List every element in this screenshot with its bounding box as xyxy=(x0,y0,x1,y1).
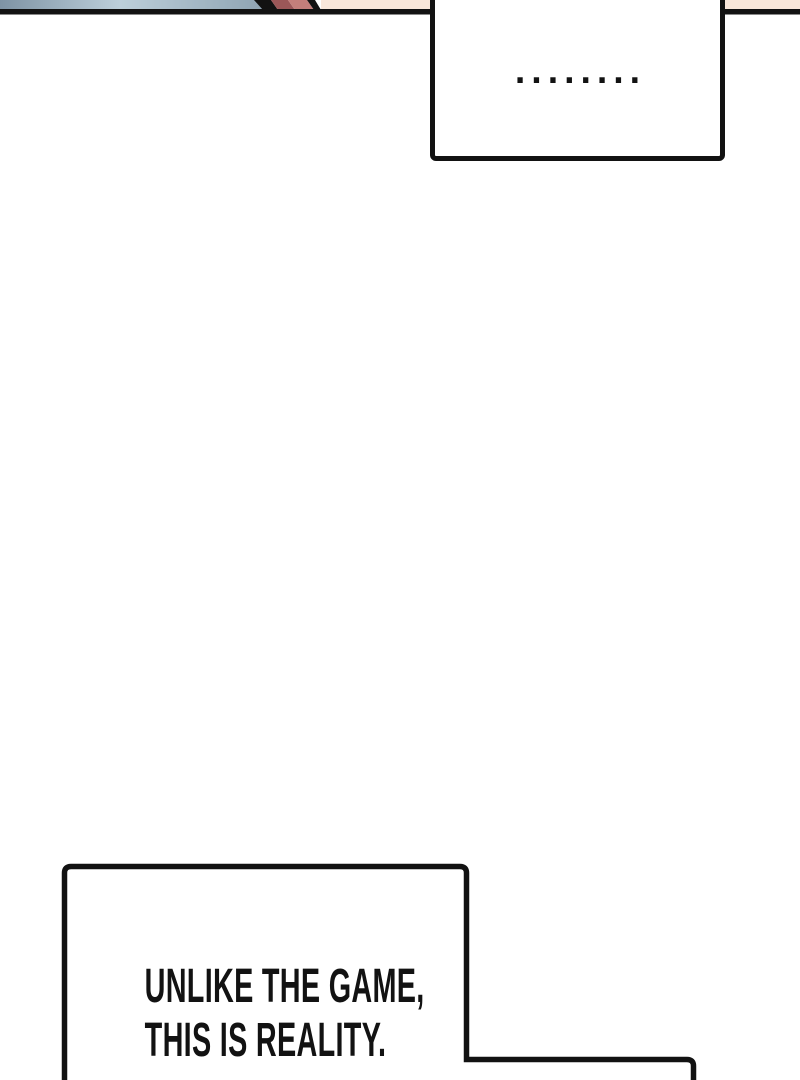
ellipsis-text: ........ xyxy=(509,56,645,91)
speech-bubble-bottom-shape xyxy=(0,0,800,1080)
speech-bubble-ellipsis: ........ xyxy=(430,0,725,161)
comic-page: ........ UNLIKE THE GAME, THIS IS REALIT… xyxy=(0,0,800,1080)
dialogue-line-2: THIS IS REALITY. xyxy=(145,1014,387,1068)
dialogue-line-1: UNLIKE THE GAME, xyxy=(145,960,387,1014)
dialogue-text: UNLIKE THE GAME, THIS IS REALITY. xyxy=(145,960,387,1068)
